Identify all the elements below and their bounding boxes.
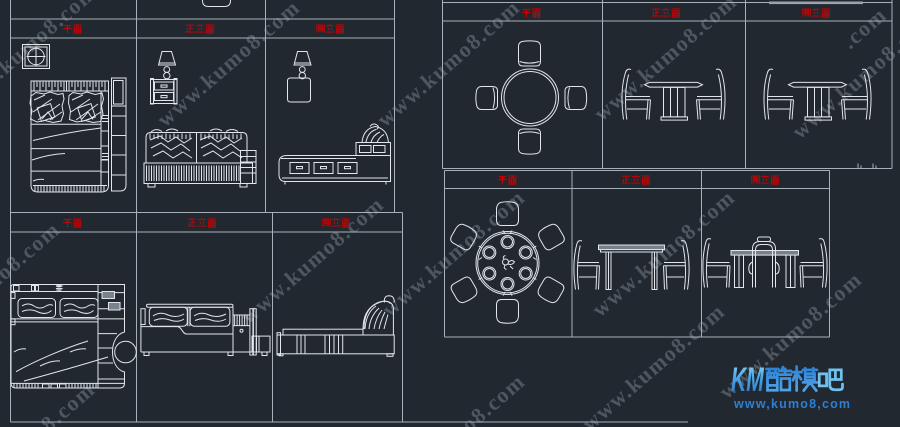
- svg-text:www.kumo8.com: www.kumo8.com: [152, 0, 305, 132]
- svg-text:www.kumo8.com: www.kumo8.com: [236, 191, 389, 329]
- svg-text:www.kumo8.com: www.kumo8.com: [589, 0, 742, 126]
- svg-text:KM: KM: [731, 360, 765, 398]
- svg-text:www.kumo8.com: www.kumo8.com: [587, 184, 740, 322]
- svg-text:www.kumo8.com: www.kumo8.com: [377, 368, 530, 427]
- svg-text:www.kumo8.com: www.kumo8.com: [377, 184, 530, 322]
- svg-text:www,kumo8,com: www,kumo8,com: [733, 397, 851, 411]
